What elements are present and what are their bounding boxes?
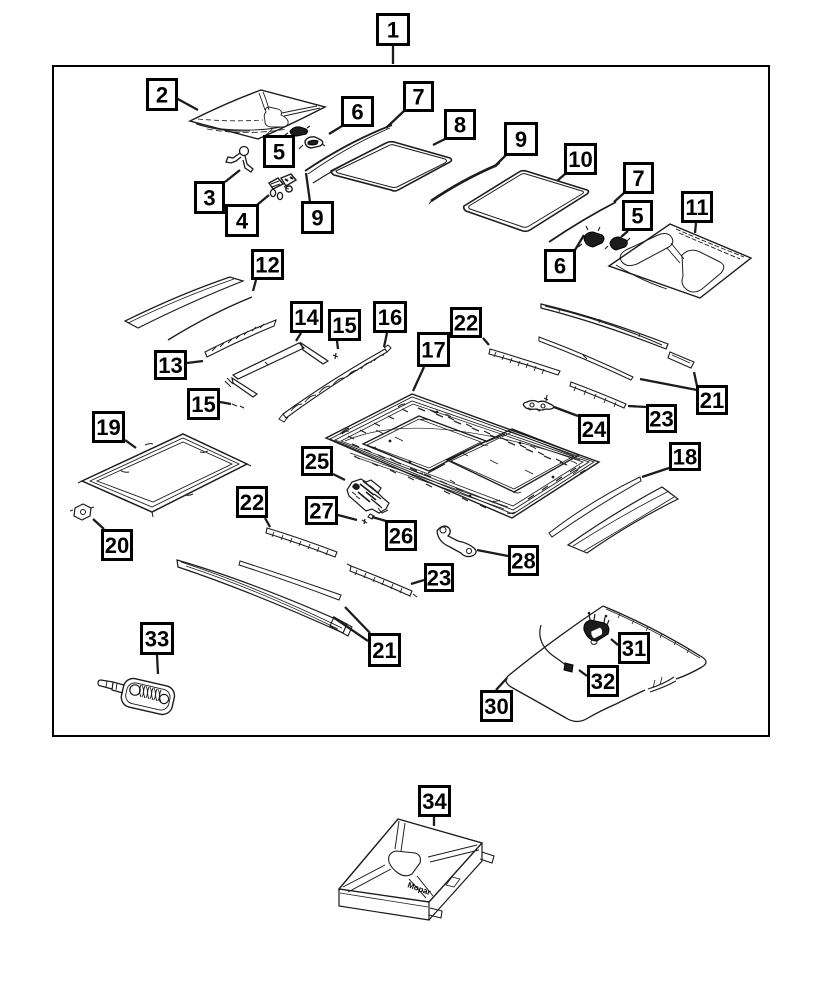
svg-text:30: 30 [484, 694, 508, 719]
svg-text:26: 26 [389, 524, 413, 549]
svg-text:11: 11 [685, 195, 708, 220]
svg-text:5: 5 [273, 140, 285, 165]
svg-text:34: 34 [422, 789, 447, 814]
svg-text:24: 24 [582, 417, 607, 442]
svg-text:13: 13 [158, 353, 182, 378]
svg-text:6: 6 [554, 254, 566, 279]
svg-text:28: 28 [511, 549, 535, 574]
svg-text:21: 21 [372, 638, 396, 663]
svg-text:17: 17 [421, 338, 445, 363]
svg-text:27: 27 [309, 499, 333, 524]
svg-text:22: 22 [240, 490, 264, 515]
svg-text:23: 23 [427, 566, 451, 591]
svg-text:19: 19 [96, 415, 120, 440]
svg-text:8: 8 [454, 113, 466, 138]
svg-text:33: 33 [145, 627, 169, 652]
svg-text:3: 3 [203, 186, 215, 211]
svg-text:7: 7 [412, 85, 424, 110]
svg-text:Mopar: Mopar [406, 880, 432, 897]
svg-text:22: 22 [454, 311, 478, 336]
svg-text:20: 20 [105, 533, 129, 558]
svg-text:9: 9 [311, 206, 323, 231]
svg-text:15: 15 [332, 313, 356, 338]
svg-text:12: 12 [255, 253, 279, 278]
svg-text:4: 4 [236, 209, 249, 234]
svg-text:31: 31 [622, 636, 646, 661]
svg-text:23: 23 [649, 407, 673, 432]
svg-text:9: 9 [515, 127, 527, 152]
svg-text:15: 15 [191, 392, 215, 417]
svg-text:5: 5 [631, 204, 643, 229]
svg-text:25: 25 [305, 449, 329, 474]
svg-text:18: 18 [673, 445, 697, 470]
svg-text:32: 32 [591, 669, 615, 694]
svg-text:1: 1 [387, 18, 399, 43]
svg-text:7: 7 [632, 166, 644, 191]
svg-text:21: 21 [700, 388, 724, 413]
svg-text:10: 10 [568, 147, 592, 172]
svg-text:16: 16 [378, 305, 402, 330]
svg-text:6: 6 [351, 100, 363, 125]
svg-text:14: 14 [294, 305, 319, 330]
svg-text:2: 2 [156, 83, 168, 108]
